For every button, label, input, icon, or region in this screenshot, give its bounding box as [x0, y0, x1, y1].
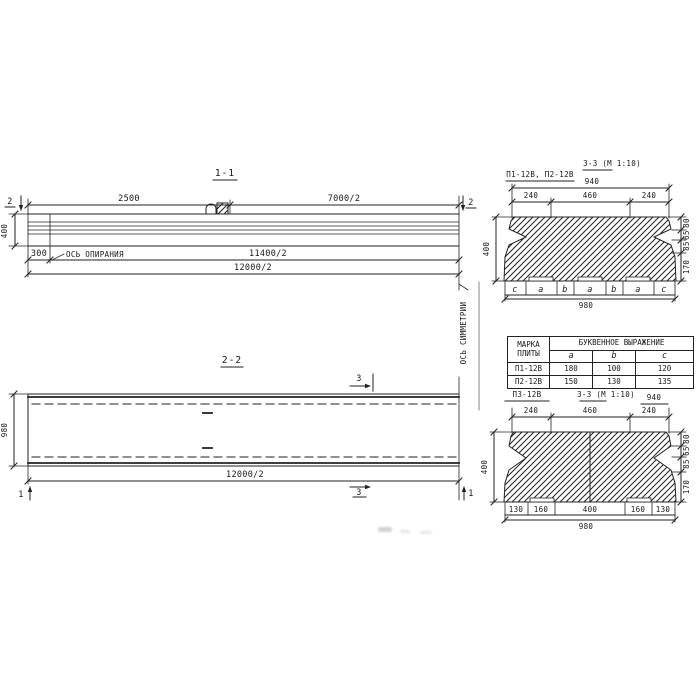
- table-col-b: b: [593, 351, 636, 363]
- dim-400-section-label: 400: [482, 242, 491, 257]
- dim-12000-label: 12000/2: [234, 263, 272, 273]
- table-row-p1: П1-12В 180 100 120: [508, 363, 694, 376]
- dim-12000-plan-label: 12000/2: [226, 470, 264, 480]
- bottom-groove: [530, 498, 554, 502]
- loop-anchor-pad: [217, 203, 228, 214]
- dim-80-label: 80: [682, 218, 691, 228]
- cut-marker-3-top: 3: [356, 374, 361, 384]
- table-header-expression: БУКВЕННОЕ ВЫРАЖЕНИЕ: [550, 337, 694, 351]
- section-1-1-title: 1-1: [215, 168, 235, 179]
- letter-b: b: [611, 285, 616, 295]
- section-2-2-title: 2-2: [222, 355, 242, 366]
- cut-marker-2-left: 2: [7, 197, 12, 207]
- scan-smudge: [400, 530, 410, 533]
- letter-c: c: [661, 285, 666, 295]
- section-2-2: 2-2 3 980 12000/2 1 3 1: [0, 355, 474, 500]
- cell-b: 130: [593, 376, 636, 389]
- slab-cross-section-p1-p2: [504, 217, 676, 281]
- bottom-groove: [578, 277, 602, 281]
- dim-7000-label: 7000/2: [328, 194, 361, 204]
- p3-section-title: 3-3 (М 1:10): [577, 390, 635, 399]
- dim-170-label: 170: [682, 260, 691, 275]
- cut-marker-2-right: 2: [468, 198, 473, 208]
- plate-spec-table: МАРКА ПЛИТЫ БУКВЕННОЕ ВЫРАЖЕНИЕ a b c П1…: [507, 336, 694, 389]
- cell-mark: П2-12В: [508, 376, 550, 389]
- scan-smudge: [378, 527, 392, 532]
- dim-460-label: 460: [583, 191, 598, 200]
- dim-400-bottom-label: 400: [583, 505, 598, 514]
- p1-p2-section-title: 3-3 (М 1:10): [583, 159, 641, 168]
- letter-a: a: [538, 285, 543, 295]
- dim-980-section-label: 980: [579, 301, 594, 310]
- cell-a: 150: [550, 376, 593, 389]
- dim-240-left-p3-label: 240: [524, 406, 539, 415]
- cell-c: 135: [636, 376, 694, 389]
- dim-85-p3-label: 85: [682, 459, 691, 469]
- dim-300-label: 300: [31, 249, 47, 259]
- cell-a: 180: [550, 363, 593, 376]
- dim-240-right-label: 240: [642, 191, 657, 200]
- bottom-groove: [529, 277, 553, 281]
- cut-marker-1-left: 1: [18, 490, 23, 500]
- table-col-c: c: [636, 351, 694, 363]
- dim-11400-label: 11400/2: [249, 249, 287, 259]
- section-1-1: 1-1 2500 7000/2 2 2 400: [0, 168, 476, 277]
- dim-980-p3-label: 980: [579, 522, 594, 531]
- table-header-mark: МАРКА ПЛИТЫ: [508, 337, 550, 363]
- dim-2500-label: 2500: [118, 194, 140, 204]
- cell-b: 100: [593, 363, 636, 376]
- dim-940-p3-label: 940: [647, 393, 662, 402]
- dim-160-right-label: 160: [631, 505, 646, 514]
- dim-160-left-label: 160: [534, 505, 549, 514]
- dim-400-label: 400: [0, 224, 9, 239]
- symmetry-axis-label: ОСЬ СИММЕТРИИ: [459, 302, 468, 365]
- dim-980-label: 980: [0, 423, 9, 438]
- cell-mark: П1-12В: [508, 363, 550, 376]
- dim-400-p3-label: 400: [480, 460, 489, 475]
- dim-85-label: 85: [682, 241, 691, 251]
- dim-130-right-label: 130: [656, 505, 671, 514]
- table-row-p2: П2-12В 150 130 135: [508, 376, 694, 389]
- section-3-3-p1-p2: П1-12В, П2-12В 3-3 (М 1:10) 940 240 460 …: [482, 159, 691, 310]
- letter-c: c: [512, 285, 517, 295]
- dim-65-label: 65: [682, 230, 691, 240]
- cut-marker-1-right: 1: [468, 489, 473, 499]
- bottom-groove: [627, 498, 651, 502]
- symmetry-axis: ОСЬ СИММЕТРИИ: [459, 196, 479, 500]
- blueprint-page: 1-1 2500 7000/2 2 2 400: [0, 0, 700, 700]
- letter-b: b: [562, 285, 567, 295]
- dim-460-p3-label: 460: [583, 406, 598, 415]
- section-3-3-p3: П3-12В 3-3 (М 1:10) 940 240 460 240 400: [480, 390, 691, 531]
- dim-170-p3-label: 170: [682, 480, 691, 495]
- table-col-a: a: [550, 351, 593, 363]
- dim-940-label: 940: [585, 177, 600, 186]
- dim-130-left-label: 130: [509, 505, 524, 514]
- letter-a: a: [635, 285, 640, 295]
- letter-a: a: [587, 285, 592, 295]
- dim-80-p3-label: 80: [682, 434, 691, 444]
- support-axis-label: ОСЬ ОПИРАНИЯ: [66, 250, 124, 259]
- dim-65-p3-label: 65: [682, 446, 691, 456]
- p3-label: П3-12В: [513, 390, 542, 399]
- dim-240-right-p3-label: 240: [642, 406, 657, 415]
- scan-smudge: [420, 531, 432, 534]
- p1-p2-label: П1-12В, П2-12В: [506, 170, 574, 179]
- bottom-groove: [626, 277, 650, 281]
- cell-c: 120: [636, 363, 694, 376]
- dim-240-left-label: 240: [524, 191, 539, 200]
